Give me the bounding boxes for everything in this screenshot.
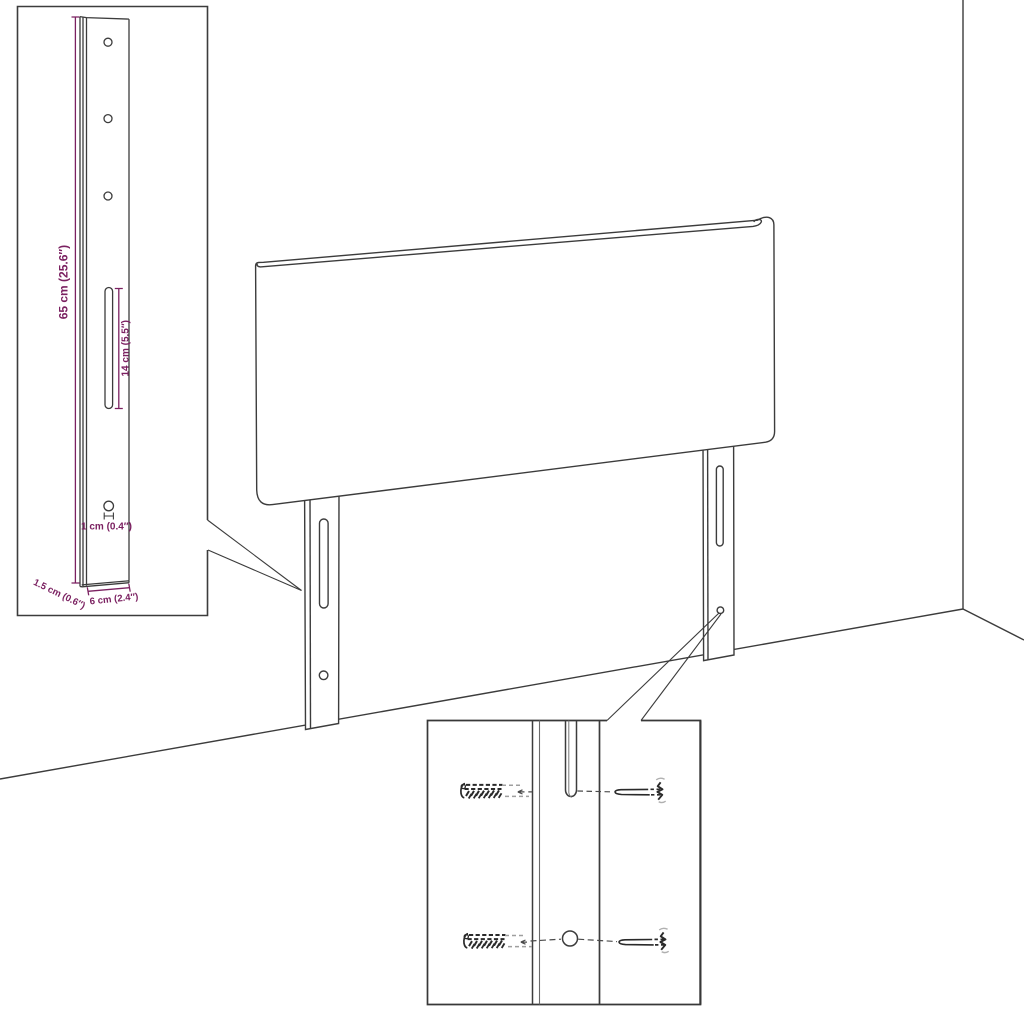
- svg-text:1.5 cm (0.6″): 1.5 cm (0.6″): [31, 577, 86, 612]
- svg-text:14 cm (5.5″): 14 cm (5.5″): [121, 320, 132, 376]
- svg-text:1 cm (0.4″): 1 cm (0.4″): [81, 522, 132, 533]
- svg-text:6 cm (2.4″): 6 cm (2.4″): [89, 591, 139, 607]
- svg-text:65 cm (25.6″): 65 cm (25.6″): [56, 245, 70, 319]
